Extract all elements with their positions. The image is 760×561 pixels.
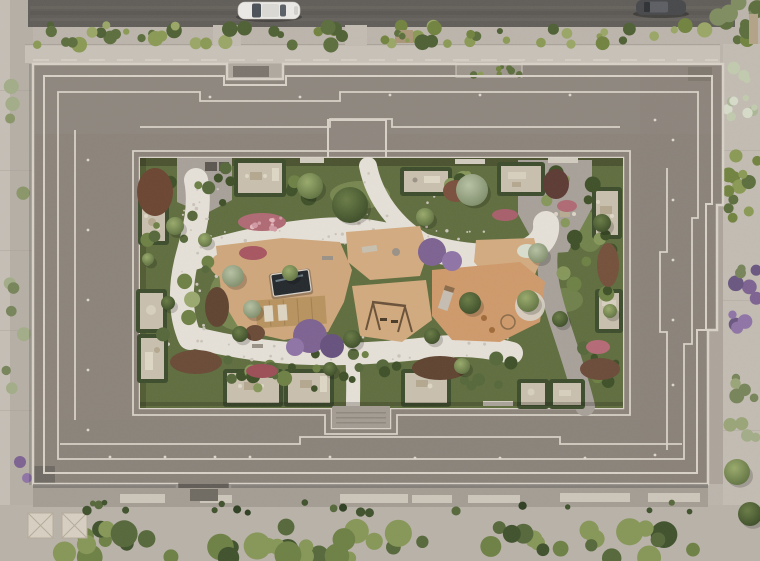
aerial-render (0, 0, 760, 561)
scene-svg (0, 0, 760, 561)
grain-overlay (0, 0, 760, 561)
texture (0, 0, 760, 561)
